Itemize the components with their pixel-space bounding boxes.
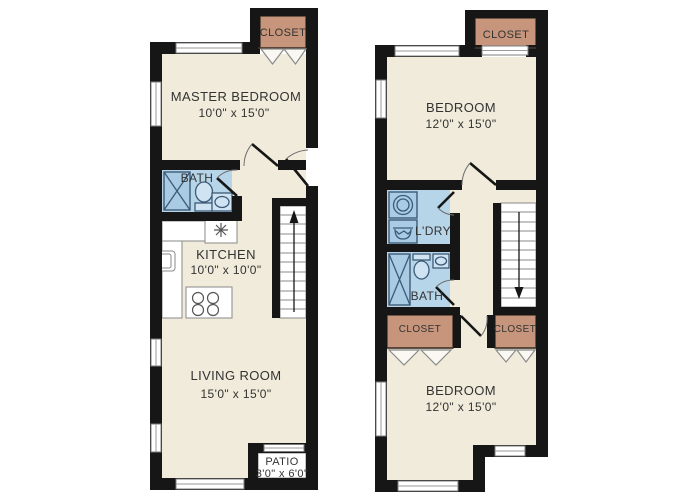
floor1-plan: CLOSET MASTER BEDROOM 10'0" x 15'0" BATH… [150, 8, 318, 490]
master-bedroom-dims: 10'0" x 15'0" [198, 106, 269, 120]
sink-icon [433, 254, 449, 268]
floor-plan-drawing: CLOSET MASTER BEDROOM 10'0" x 15'0" BATH… [0, 0, 700, 500]
closet-2f-right-label: CLOSET [494, 324, 536, 335]
washer-icon [389, 192, 417, 218]
closet-1f-label: CLOSET [260, 27, 306, 39]
closet-2f-top-label: CLOSET [483, 29, 529, 41]
toilet-bowl [196, 182, 213, 202]
toilet-tank [195, 203, 213, 211]
floor-plan-page: CLOSET MASTER BEDROOM 10'0" x 15'0" BATH… [0, 0, 700, 500]
staircase-up [280, 206, 306, 318]
light-fixture-icon [214, 223, 228, 237]
patio-dims: 3'0" x 6'0" [256, 468, 309, 480]
living-room-dims: 15'0" x 15'0" [200, 387, 271, 401]
floor2-plan: CLOSET BEDROOM 12'0" x 15'0" L'DRY BATH … [375, 10, 548, 492]
kitchen-dims: 10'0" x 10'0" [190, 263, 261, 277]
bedroom-bottom-label: BEDROOM [426, 383, 496, 398]
stove-icon [186, 287, 232, 318]
master-bedroom-label: MASTER BEDROOM [171, 89, 302, 104]
staircase-down [501, 203, 536, 307]
laundry-tub-icon [389, 220, 417, 243]
sink-icon [212, 193, 232, 211]
patio-label: PATIO [265, 456, 298, 468]
bath-2f-label: BATH [411, 289, 444, 303]
kitchen-label: KITCHEN [196, 247, 256, 262]
bedroom-top-label: BEDROOM [426, 100, 496, 115]
living-room-label: LIVING ROOM [190, 368, 281, 383]
bedroom-bottom-dims: 12'0" x 15'0" [425, 400, 496, 414]
bath-1f-label: BATH [181, 171, 214, 185]
toilet-bowl [414, 261, 429, 279]
laundry-label: L'DRY [415, 224, 451, 238]
bedroom-top-dims: 12'0" x 15'0" [425, 117, 496, 131]
closet-2f-left-label: CLOSET [399, 324, 441, 335]
toilet-icon [195, 182, 213, 211]
toilet-tank [413, 254, 430, 260]
toilet-icon [413, 254, 430, 279]
